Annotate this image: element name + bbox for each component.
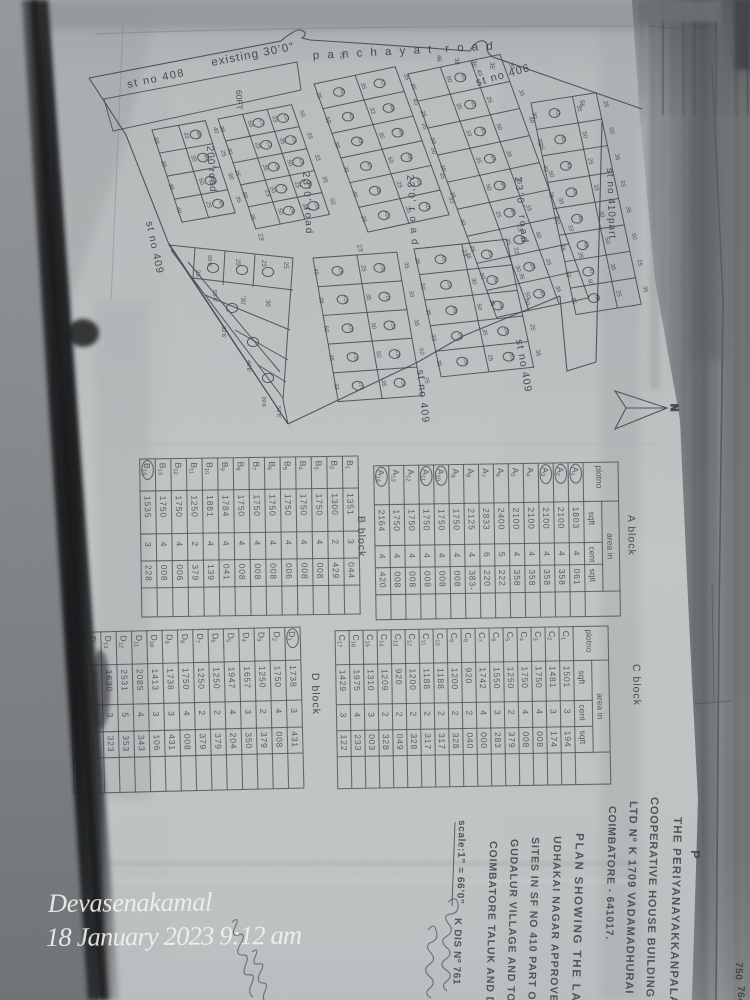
svg-text:Devasenakamal: Devasenakamal — [47, 887, 212, 918]
svg-text:18 January 2023 9:12 am: 18 January 2023 9:12 am — [46, 920, 302, 952]
